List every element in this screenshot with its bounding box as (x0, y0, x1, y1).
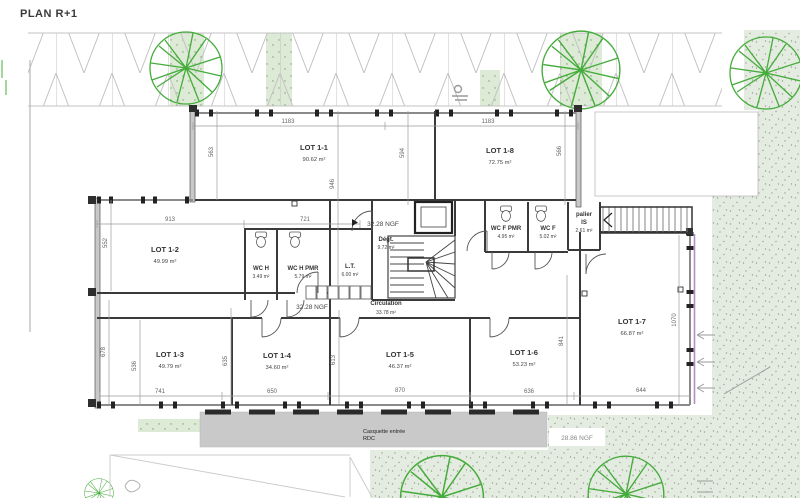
dimension: 644 (636, 388, 647, 394)
dimension: 913 (165, 217, 176, 223)
room-label: LOT 1-4 (263, 351, 292, 360)
toilet-icon (501, 206, 512, 221)
dimension: 841 (559, 335, 565, 346)
elevator (415, 202, 452, 233)
dimension: 678 (101, 346, 107, 357)
room-area: 33.78 m² (376, 310, 396, 316)
dimension: 613 (331, 354, 337, 365)
room-area: 4.95 m² (498, 234, 515, 240)
property-line (2, 60, 30, 332)
room-label: LOT 1-2 (151, 245, 179, 254)
dimension: 741 (155, 389, 166, 395)
room-area: 5.79 m² (295, 274, 312, 280)
dimension: 650 (267, 389, 278, 395)
room-area: 72.75 m² (489, 160, 512, 166)
dimension: 1183 (482, 119, 496, 125)
dimension: 636 (524, 389, 535, 395)
dimension: 946 (330, 178, 336, 189)
room-label: WC H PMR (288, 266, 320, 272)
room-label: LOT 1-7 (618, 317, 646, 326)
room-area: 49.79 m² (159, 364, 182, 370)
vegetation-hatch-band (28, 33, 722, 106)
floor-plan-canvas: PLAN R+1 LOT 1-1 90.62 m² LOT 1-2 49.99 … (0, 0, 800, 498)
room-area: 9.72 m² (378, 245, 395, 251)
room-label: WC H (253, 266, 269, 272)
dimension: 566 (557, 145, 563, 156)
exterior-escape-stair (600, 207, 692, 233)
room-area: 46.37 m² (389, 364, 412, 370)
dimension: 563 (209, 146, 215, 157)
tree-icon (85, 479, 114, 498)
toilet-icon (536, 206, 547, 221)
room-area: 90.62 m² (303, 157, 326, 163)
room-label: WC F PMR (491, 226, 522, 232)
toilet-icon (256, 232, 267, 247)
room-label: LOT 1-3 (156, 350, 184, 359)
room-label: WC F (540, 226, 556, 232)
dimension: 870 (395, 388, 406, 394)
floor-plan-page: PLAN R+1 LOT 1-1 90.62 m² LOT 1-2 49.99 … (0, 0, 800, 498)
room-area: 6.00 m² (342, 272, 359, 278)
dimension: 721 (300, 217, 311, 223)
level-label: 32.28 NGF (367, 221, 399, 228)
adjacent-plot (595, 112, 758, 196)
main-staircase (388, 236, 455, 298)
room-label: LOT 1-8 (486, 146, 514, 155)
dimension: 1183 (282, 119, 296, 125)
canopy-note: Casquette entrée (363, 429, 405, 435)
room-area: 66.87 m² (621, 331, 644, 337)
dimension: 552 (103, 237, 109, 248)
toilet-icon (290, 232, 301, 247)
room-area: 5.02 m² (540, 234, 557, 240)
dimension: 536 (132, 360, 138, 371)
room-area: 3.49 m² (253, 274, 270, 280)
room-label: Dégt. (379, 237, 394, 243)
room-area: 49.99 m² (154, 259, 177, 265)
page-title: PLAN R+1 (20, 8, 78, 20)
locker-row (306, 286, 371, 299)
room-label: L.T. (345, 264, 355, 270)
level-label: 32.28 NGF (296, 304, 328, 311)
level-label: 28.86 NGF (561, 435, 593, 442)
room-area: 34.60 m² (266, 365, 289, 371)
room-label: IS (581, 220, 587, 226)
dimension: 1070 (672, 313, 678, 327)
room-label: LOT 1-1 (300, 143, 328, 152)
canopy-note: RDC (363, 436, 375, 442)
dimension: 594 (400, 147, 406, 158)
parking-hatch (110, 455, 372, 497)
room-label: LOT 1-5 (386, 350, 414, 359)
room-label: Circulation (370, 301, 402, 307)
room-label: LOT 1-6 (510, 348, 538, 357)
room-label: palier (576, 212, 593, 218)
room-area: 53.23 m² (513, 362, 536, 368)
room-area: 2.61 m² (576, 228, 593, 234)
dimension: 635 (223, 355, 229, 366)
